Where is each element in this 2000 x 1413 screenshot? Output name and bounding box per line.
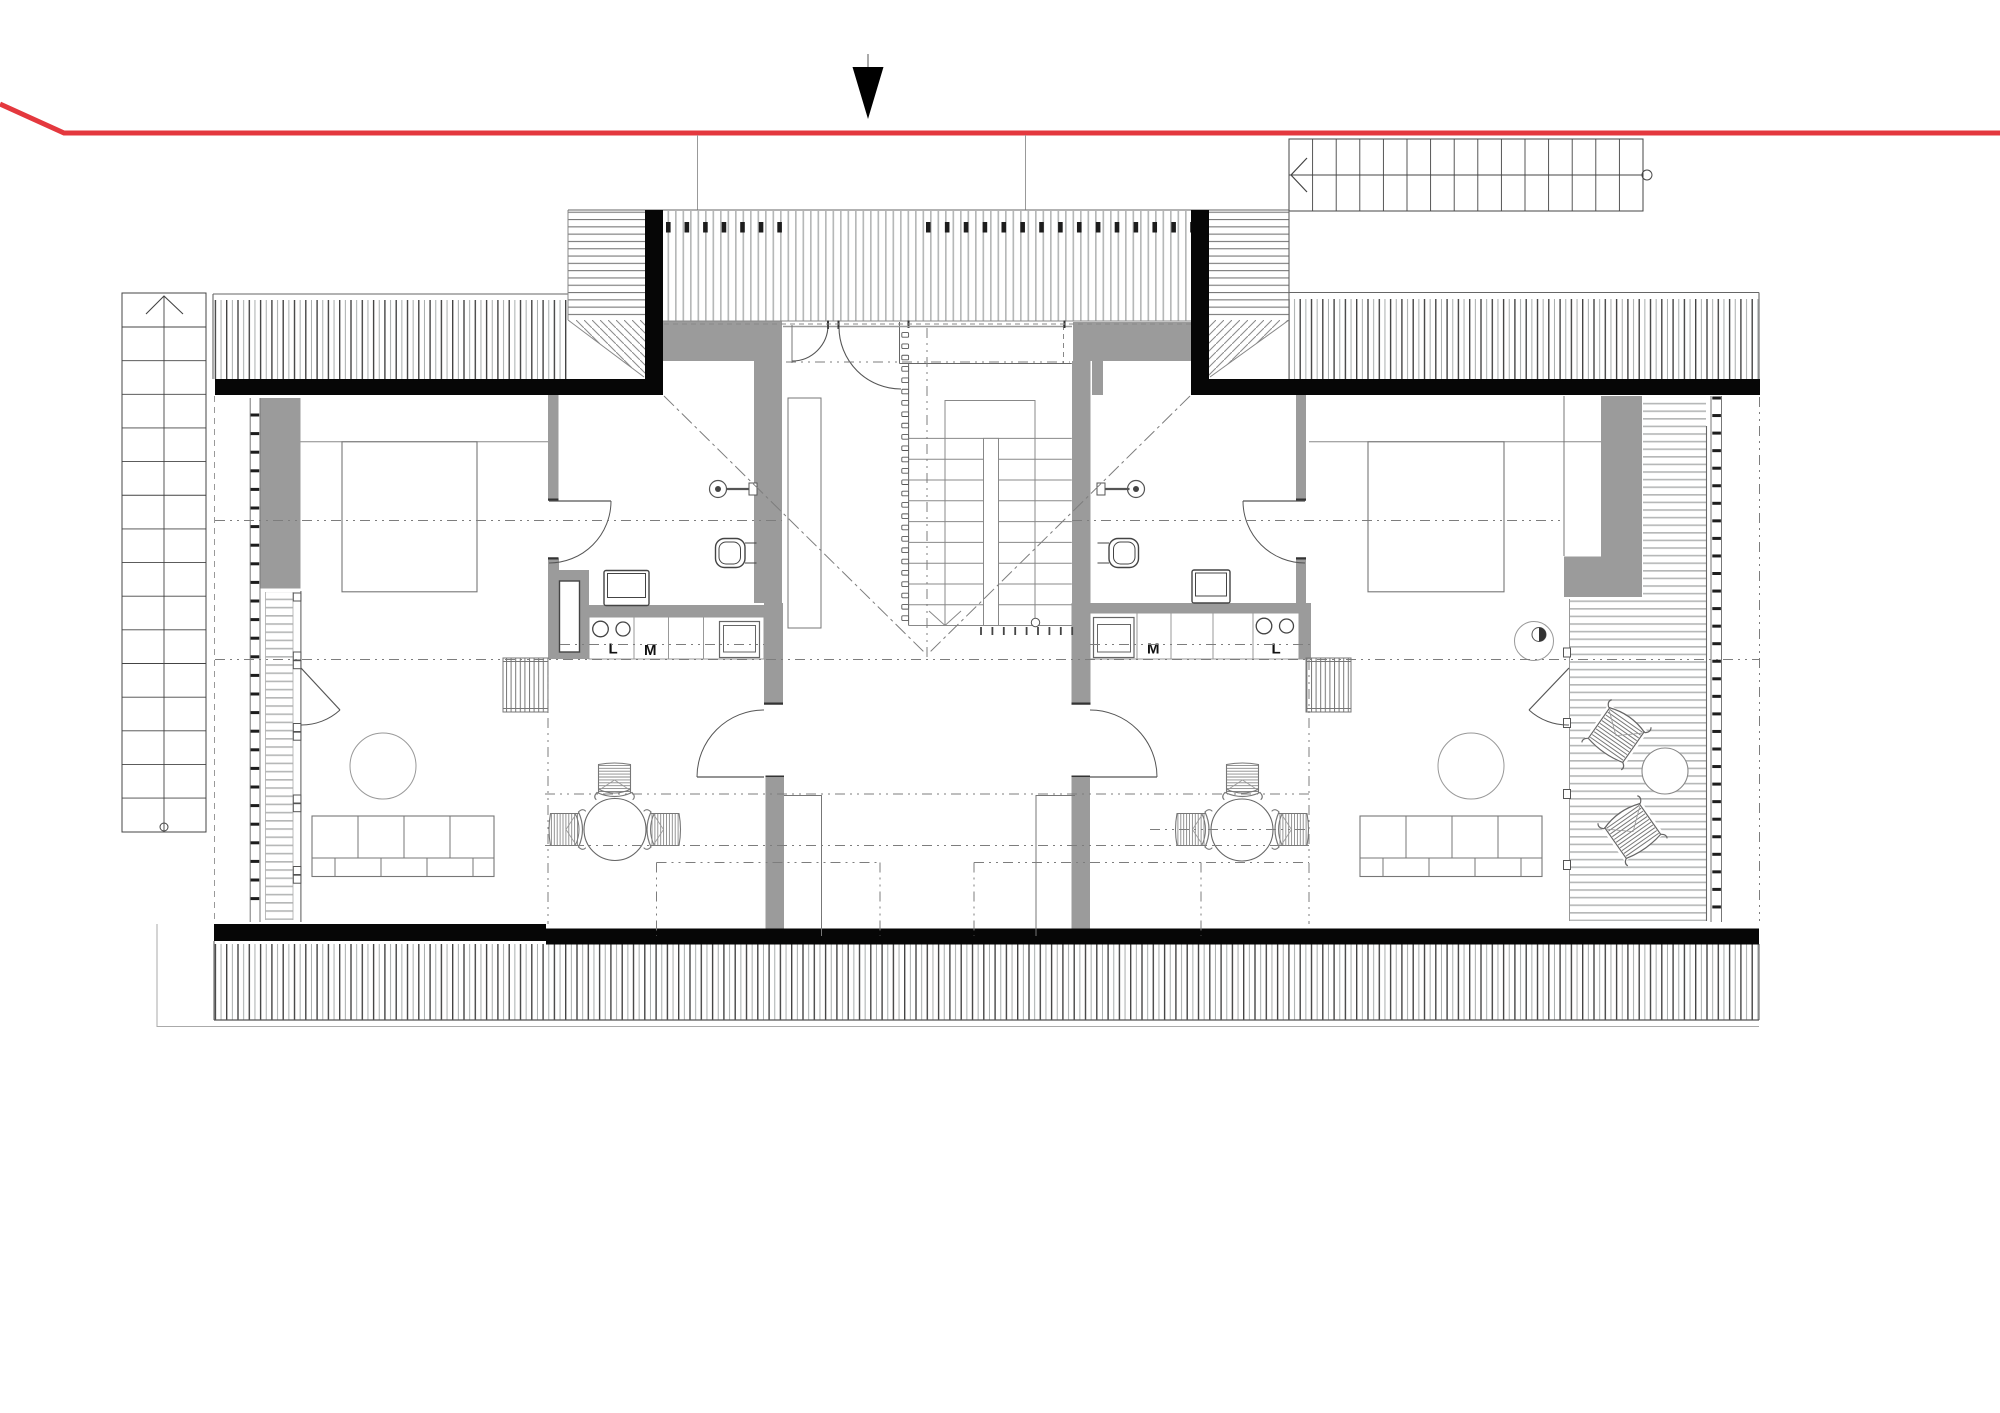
svg-text:M: M <box>1147 641 1160 658</box>
svg-text:L: L <box>1272 641 1281 658</box>
svg-text:L: L <box>609 641 618 658</box>
